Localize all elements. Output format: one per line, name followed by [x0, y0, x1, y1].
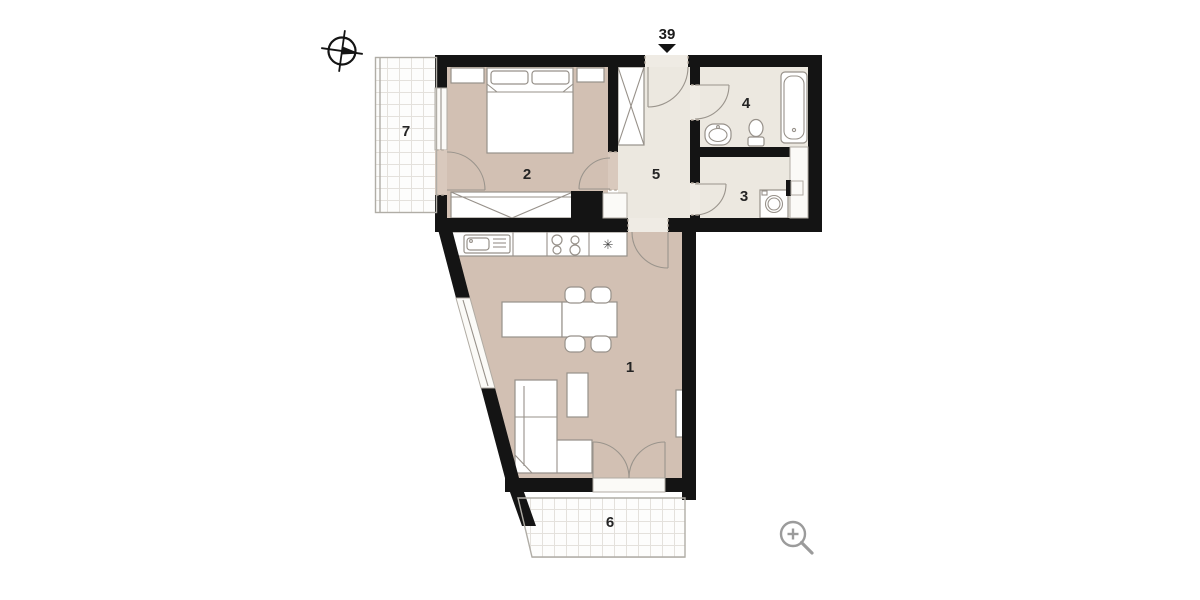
room-label-balcony-south: 6 [606, 514, 614, 531]
pillow [532, 71, 569, 84]
compass-icon [318, 27, 365, 74]
shaft-duct [791, 181, 803, 195]
hall-niche [603, 193, 627, 218]
washing-machine [760, 190, 788, 218]
wall [700, 147, 790, 157]
zoom-in-icon[interactable] [781, 522, 812, 553]
chair [591, 287, 611, 303]
wall [690, 218, 822, 232]
unit-number-label: 39 [659, 26, 676, 43]
wall [808, 55, 822, 232]
stove-burner [553, 246, 561, 254]
bathtub [781, 72, 807, 143]
room-label-living: 1 [626, 359, 634, 376]
entrance-opening [645, 55, 688, 67]
room-label-bathroom: 4 [742, 95, 751, 112]
wall [682, 232, 696, 500]
dining-table [562, 302, 617, 337]
refrigerator-asterisk-icon: ✳ [603, 237, 614, 252]
room-label-hallway: 5 [652, 166, 660, 183]
coffee-table [567, 373, 588, 417]
nightstand [451, 68, 484, 83]
wall [608, 67, 618, 152]
stove-burner [552, 235, 562, 245]
wall [690, 120, 700, 183]
room-label-balcony-west: 7 [402, 123, 410, 140]
wardrobe [451, 192, 573, 218]
floor-plan-canvas: ✳ [0, 0, 1200, 600]
balcony-south-door-sill [593, 478, 665, 492]
chair [591, 336, 611, 352]
wall [505, 478, 593, 492]
wall [435, 55, 645, 67]
floor-plan-drawing: ✳ [0, 0, 1200, 600]
toilet-tank [748, 137, 764, 146]
wall [435, 218, 628, 232]
wall [690, 215, 700, 232]
stove-burner [570, 245, 580, 255]
wall [688, 55, 822, 67]
entrance-arrow-icon [658, 44, 676, 53]
wall [571, 191, 603, 218]
bathroom-door-opening [690, 85, 700, 120]
wall [665, 478, 682, 492]
living-door-opening [628, 218, 668, 232]
utility-door-opening [690, 183, 700, 215]
balcony-south-rim [518, 498, 685, 557]
wall-stub [786, 180, 791, 196]
room-label-bedroom: 2 [523, 166, 531, 183]
room-label-utility: 3 [740, 188, 748, 205]
pillow [491, 71, 528, 84]
stove-burner [571, 236, 579, 244]
kitchen-island [502, 302, 562, 337]
chair [565, 287, 585, 303]
wall [690, 67, 700, 85]
nightstand [577, 68, 604, 82]
chair [565, 336, 585, 352]
toilet-bowl [749, 120, 763, 137]
